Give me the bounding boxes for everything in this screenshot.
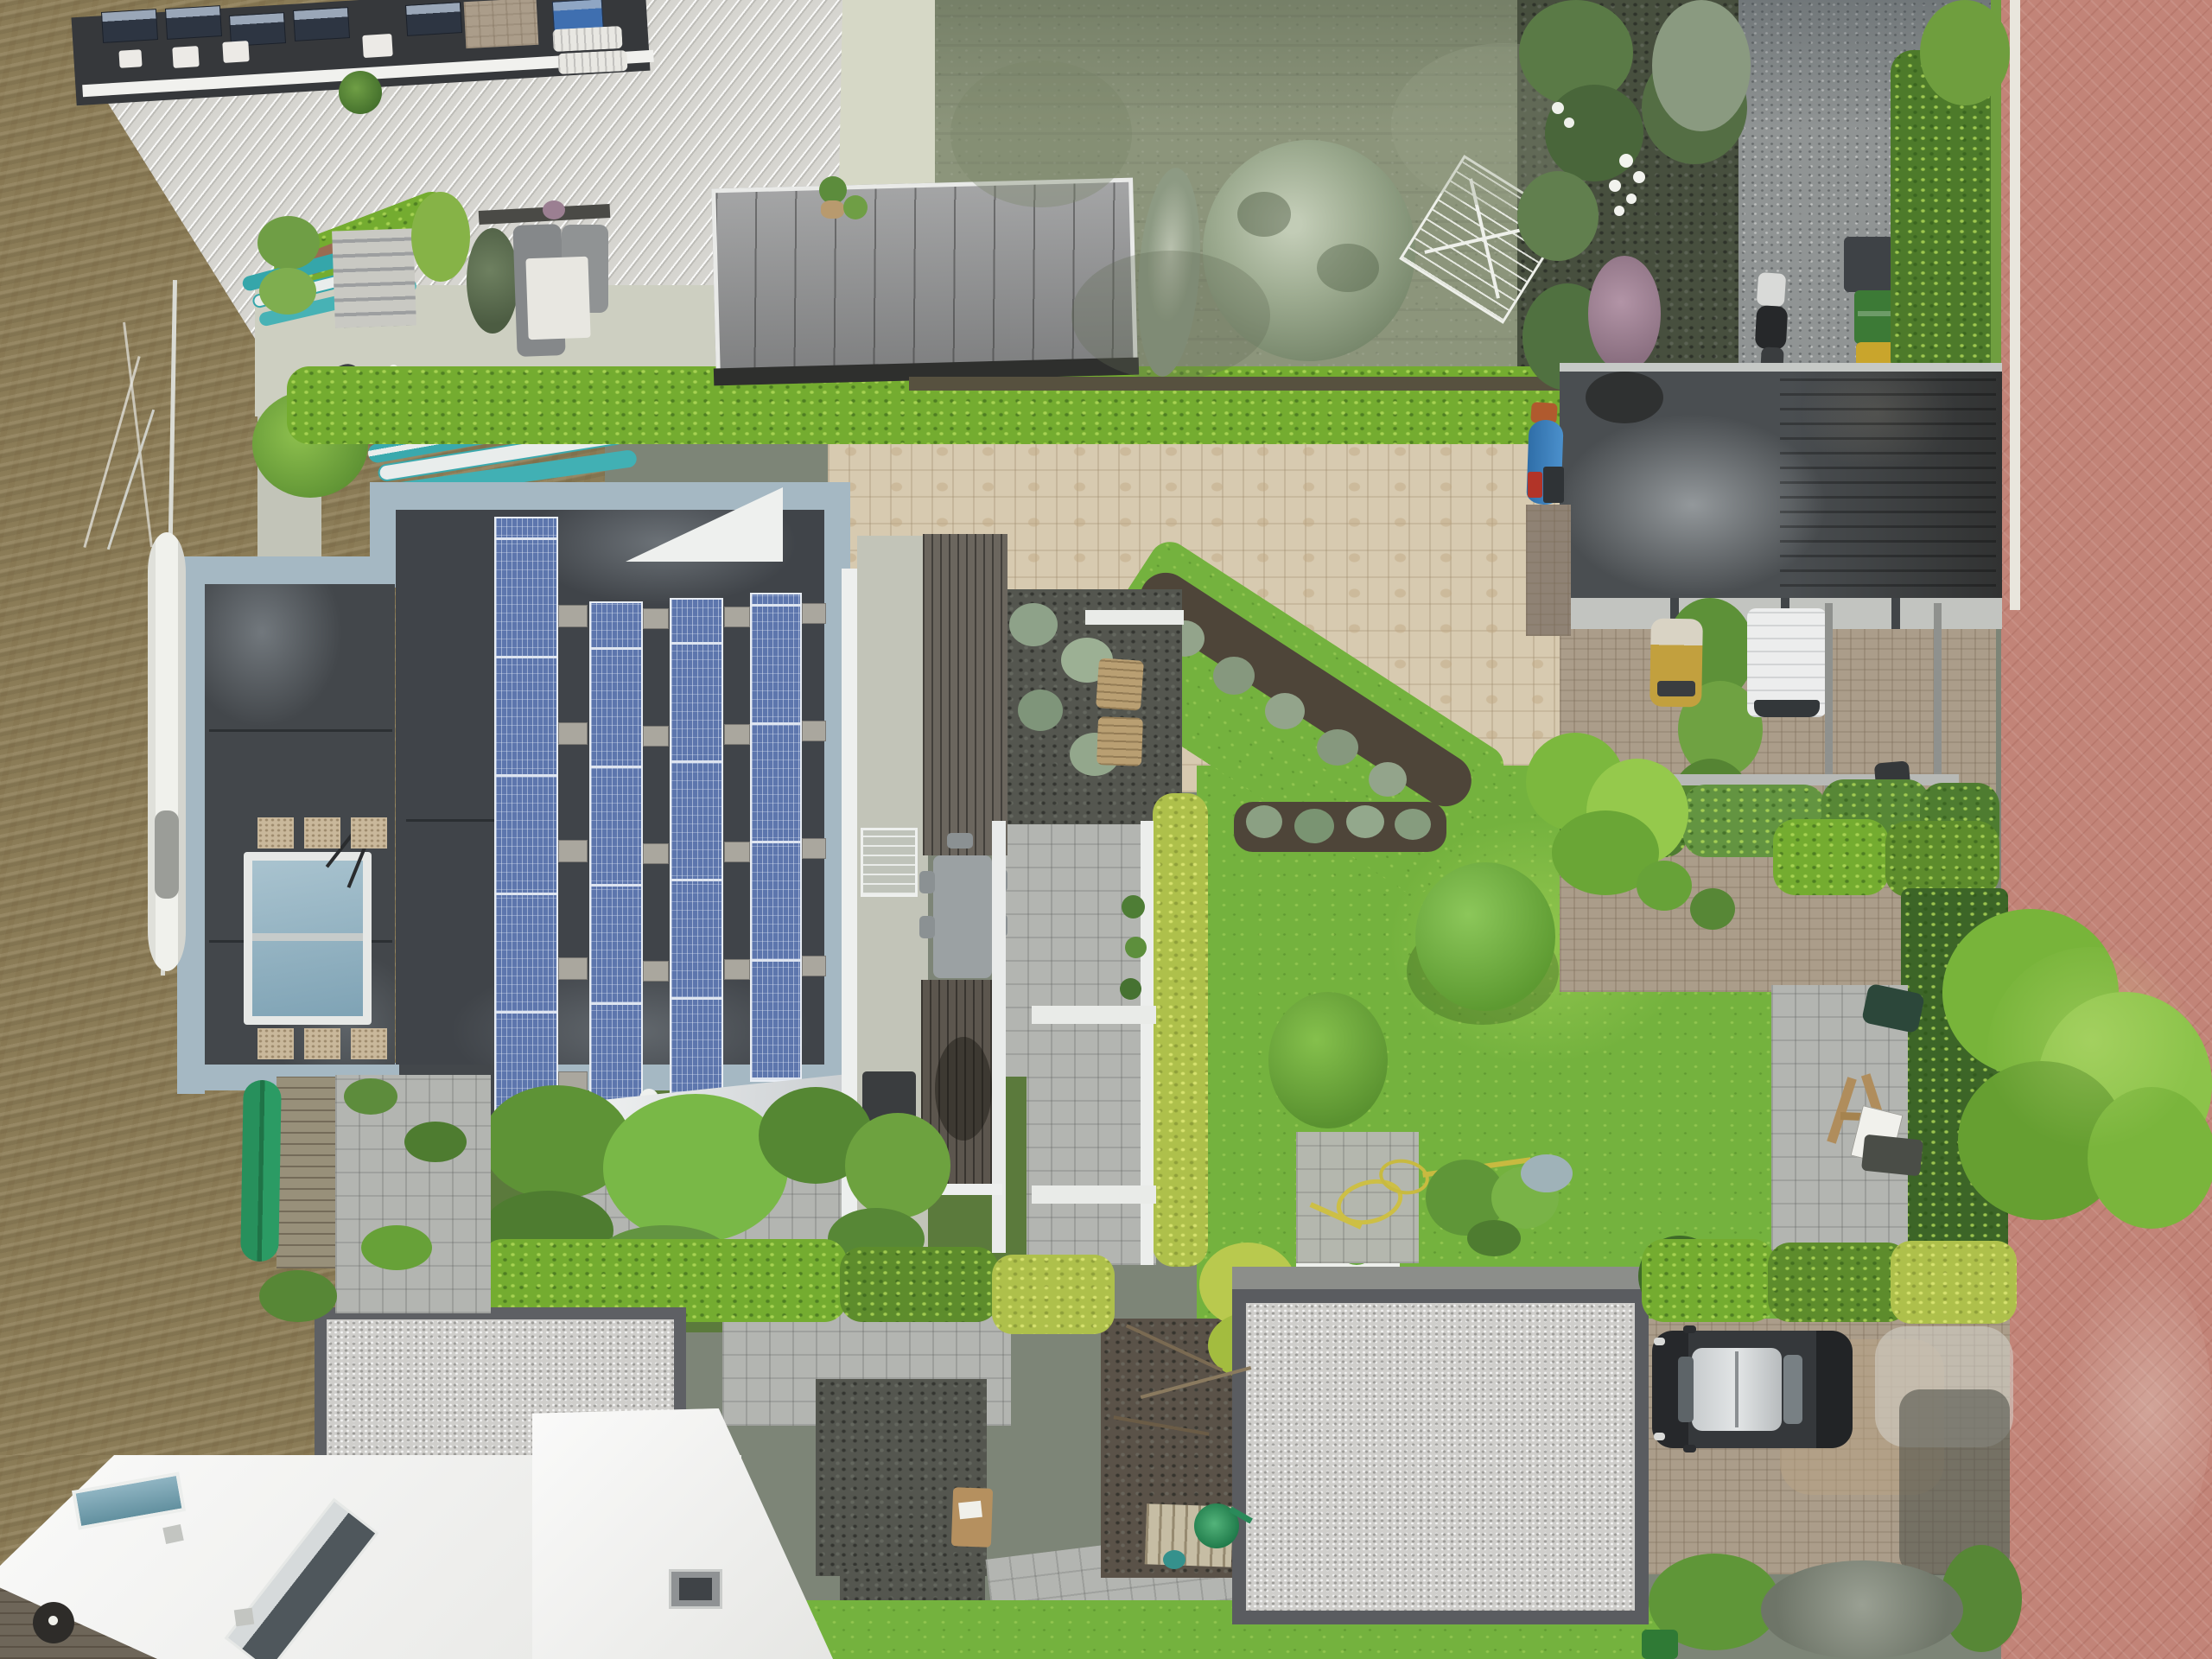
ballast-block <box>643 843 669 864</box>
bed-shrub <box>1246 805 1282 838</box>
small-bush <box>1690 888 1735 930</box>
watering-can <box>1163 1550 1185 1569</box>
roof-ac-unit <box>222 41 249 63</box>
weed-clump <box>404 1122 467 1162</box>
turf-tree-shadow-spot <box>1317 244 1379 292</box>
quay-bush <box>259 268 316 315</box>
driveway-hedge <box>1768 1243 1910 1322</box>
scooter-windshield <box>1757 272 1787 307</box>
ballast-block <box>558 605 588 627</box>
car-rear-glass <box>1783 1355 1802 1424</box>
ballast-block <box>724 724 750 745</box>
white-flower <box>1614 206 1624 216</box>
conifer <box>467 228 518 334</box>
gravel-pad <box>257 817 294 849</box>
street-wear <box>2056 1253 2212 1564</box>
bed-shrub <box>1395 809 1431 840</box>
skylight-box-glass <box>679 1578 712 1600</box>
gravel-pad <box>351 1028 387 1059</box>
roof-solar-panel <box>293 7 350 41</box>
flowerbed-shrub <box>1517 171 1599 261</box>
roof-solar-panel <box>101 9 158 43</box>
aerial-photo <box>0 0 2212 1659</box>
garage-roof-ribs <box>1780 377 1996 601</box>
hedge-top-tree <box>1920 0 2010 105</box>
pergola-slat-roof <box>923 534 1007 855</box>
sailboat-hull <box>148 532 186 971</box>
dead-shrub <box>1761 1560 1963 1659</box>
back-hedge <box>840 1247 999 1322</box>
garage-roof-trim <box>1560 363 2002 372</box>
street-gutter <box>2010 0 2020 610</box>
van-windshield <box>1754 700 1820 717</box>
green-canoe <box>240 1080 282 1262</box>
ballast-block <box>802 603 826 624</box>
potted-plant <box>1125 937 1147 958</box>
potted-plant <box>1122 895 1145 918</box>
pergola-beam-white <box>1085 610 1184 625</box>
driveway-hedge <box>1891 1241 2017 1324</box>
sage-shrub <box>1213 657 1255 695</box>
dining-table <box>933 855 992 978</box>
white-flower <box>1564 118 1574 128</box>
ballast-block <box>724 607 750 627</box>
driveway-hedge <box>1642 1239 1775 1322</box>
greenery-clump <box>845 1113 950 1218</box>
door-mat <box>1861 1135 1923 1177</box>
ballast-block <box>724 959 750 980</box>
white-flower <box>1619 154 1633 168</box>
drying-rack <box>861 828 918 897</box>
ballast-block <box>802 956 826 976</box>
white-cup <box>48 1616 58 1625</box>
deck-lounger <box>552 26 622 52</box>
gravel-pad <box>257 1028 294 1059</box>
patio-pot-plant <box>843 195 868 219</box>
covered-boat-tarp <box>711 178 1138 381</box>
solar-array-column <box>589 601 643 1125</box>
white-flower <box>1609 180 1621 192</box>
roof-ac-unit <box>118 49 142 68</box>
sage-shrub <box>1369 762 1407 797</box>
weed-clump <box>361 1225 432 1270</box>
patio-steps <box>332 228 416 327</box>
lawn-tree <box>1415 862 1555 1011</box>
yellow-car-windshield <box>1657 681 1695 696</box>
car-mirror <box>1683 1325 1696 1333</box>
wooden-chair <box>1096 716 1143 766</box>
roof-solar-panel <box>165 5 222 40</box>
solar-array-column <box>750 593 802 1082</box>
car-headlight <box>1654 1338 1665 1345</box>
storage-crate <box>1543 467 1564 503</box>
ballast-block <box>558 957 588 980</box>
turf-tree-shadow-spot <box>1237 192 1291 237</box>
small-bush <box>1637 861 1692 911</box>
membrane-seam <box>209 729 392 732</box>
garden-hedge-right <box>1773 819 1889 895</box>
ballast-block <box>724 842 750 862</box>
street-tree-highlight <box>1987 947 2195 1154</box>
garden-hedge-right <box>1885 821 1999 897</box>
sage-shrub <box>1018 690 1063 731</box>
white-flower <box>1552 102 1564 114</box>
solar-array-column <box>670 598 723 1120</box>
ballast-block <box>643 961 669 982</box>
car-headlight <box>1654 1433 1665 1440</box>
roof-ac-unit <box>172 46 199 68</box>
sage-shrub <box>1317 729 1358 766</box>
car-front-glass <box>1678 1357 1694 1422</box>
turf-soil-edge <box>909 377 1569 391</box>
big-gravel-shed <box>1232 1289 1649 1624</box>
flower-pot <box>543 200 565 219</box>
garage-roof-stain <box>1586 372 1663 423</box>
gravel-pad <box>304 1028 340 1059</box>
bed-shrub <box>1294 809 1334 843</box>
trim-top-left <box>177 556 397 584</box>
weed-clump <box>259 1270 337 1322</box>
patio-shrub <box>1467 1220 1521 1256</box>
brick-planter <box>464 0 539 48</box>
dining-chair <box>919 916 935 938</box>
lime-tree <box>411 192 470 282</box>
red-jerry-can <box>1528 472 1542 498</box>
deck-lounger <box>557 50 627 74</box>
blue-gray-plant <box>1521 1154 1573 1192</box>
gravel-pad <box>351 817 387 849</box>
white-roof-extension <box>532 1408 833 1659</box>
car-sunroof-line <box>1735 1351 1738 1427</box>
dining-chair <box>919 871 935 893</box>
roof-ac-unit <box>362 34 393 58</box>
ballast-block <box>558 840 588 862</box>
sage-shrub <box>1265 693 1305 729</box>
gravel-pad <box>304 817 340 849</box>
turf-blotch <box>1071 251 1270 380</box>
shed-roof-stain <box>935 1037 992 1141</box>
car-mirror <box>1683 1445 1696 1452</box>
back-hedge <box>992 1255 1115 1334</box>
potted-plant <box>1120 978 1141 1000</box>
bed-shrub <box>1346 805 1384 838</box>
white-flower <box>1633 171 1645 183</box>
waste-bin-dark <box>1844 237 1894 292</box>
outdoor-rug <box>525 257 590 340</box>
ballast-block <box>643 726 669 747</box>
gray-green-tree <box>1652 0 1751 131</box>
sailboat-cockpit <box>155 810 179 899</box>
weed-clump <box>344 1078 397 1115</box>
paper-sheet <box>958 1501 982 1520</box>
pergola-beam-white <box>1032 1185 1156 1204</box>
dining-chair <box>947 833 973 849</box>
ballast-block <box>802 721 826 741</box>
wooden-chair <box>1096 658 1144 710</box>
skylight-bar <box>252 933 363 941</box>
patio-pot <box>821 200 844 219</box>
ballast-block <box>558 722 588 745</box>
shaded-brick-path <box>1526 505 1571 636</box>
purple-bush <box>1588 256 1661 372</box>
roof-solar-panel <box>405 2 462 36</box>
deck-plant <box>339 71 382 114</box>
roof-vent <box>234 1608 254 1627</box>
ballast-block <box>643 608 669 629</box>
greenery-clump <box>603 1094 788 1243</box>
turf-blotch <box>950 60 1132 207</box>
pergola-beam-white <box>1032 1006 1156 1024</box>
wooden-dock <box>276 1077 335 1268</box>
scooter-body <box>1755 305 1789 350</box>
sage-shrub <box>1009 603 1058 646</box>
heather-bed <box>816 1379 987 1576</box>
ballast-block <box>802 838 826 859</box>
white-flower <box>1626 194 1637 204</box>
solar-array-column <box>494 517 558 1134</box>
quay-bush <box>257 216 320 270</box>
garden-hedge-vertical <box>1153 793 1208 1267</box>
green-bin-corner <box>1642 1630 1678 1659</box>
lawn-bush <box>1268 992 1388 1128</box>
